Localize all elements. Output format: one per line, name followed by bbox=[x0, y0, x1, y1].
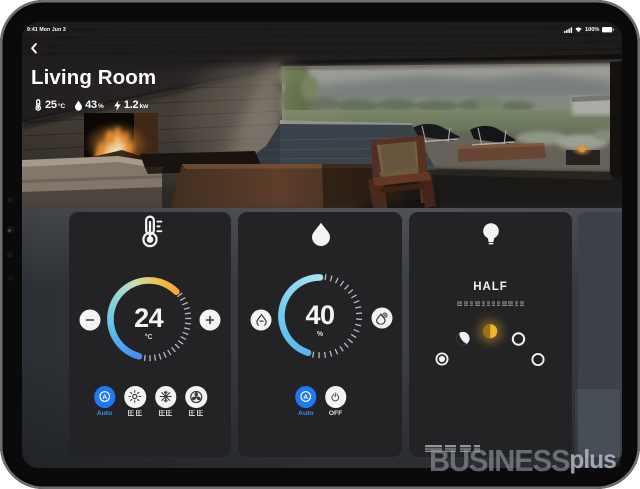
svg-text:A: A bbox=[303, 394, 308, 401]
svg-text:A: A bbox=[102, 394, 107, 401]
